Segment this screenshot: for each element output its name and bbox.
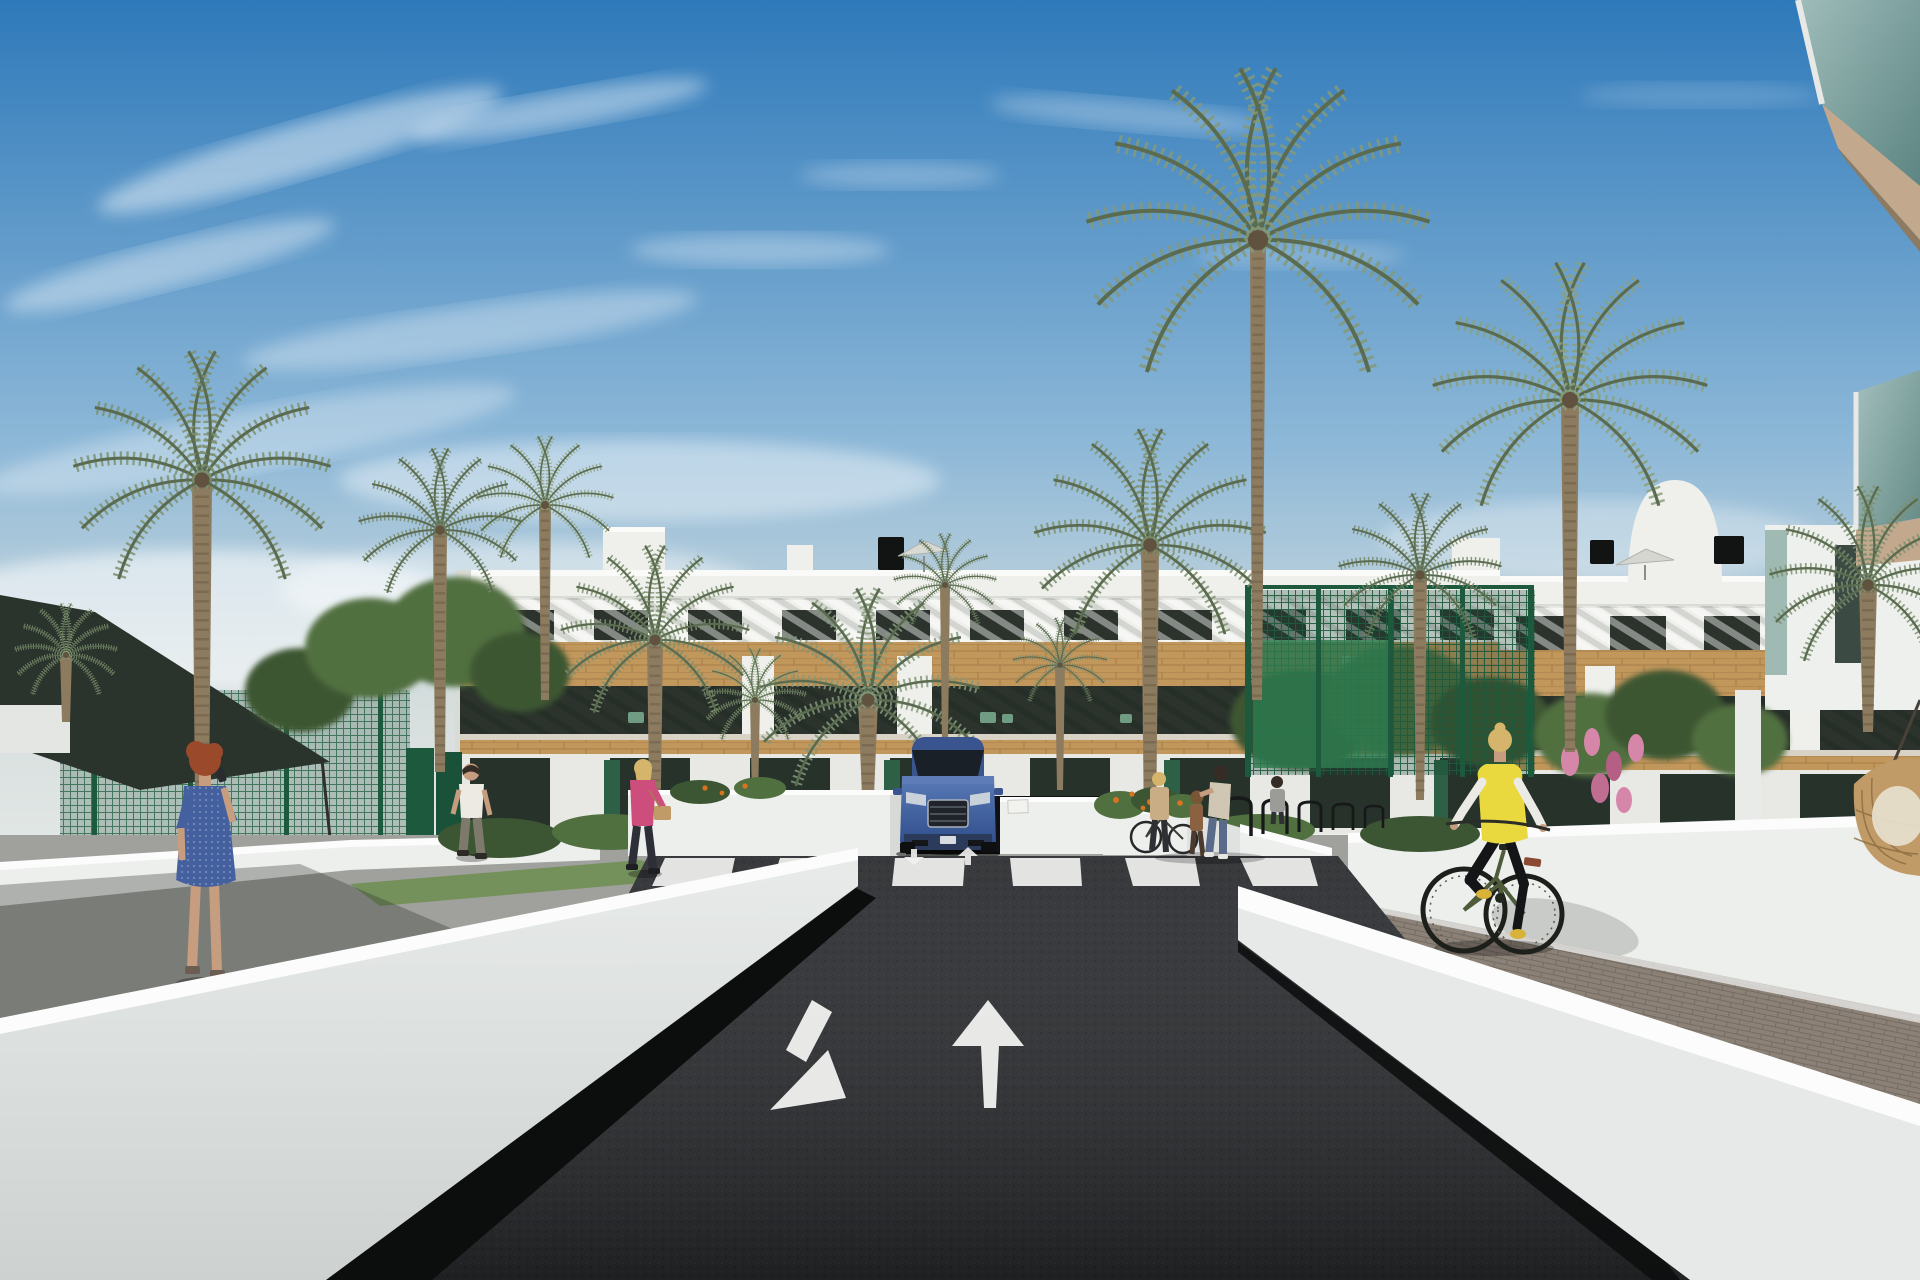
architectural-render-scene	[0, 0, 1920, 1280]
garden-gate	[406, 748, 434, 840]
render-canvas	[0, 0, 1920, 1280]
entrance-sign	[1008, 800, 1028, 814]
entrance-wall-left	[628, 790, 906, 856]
